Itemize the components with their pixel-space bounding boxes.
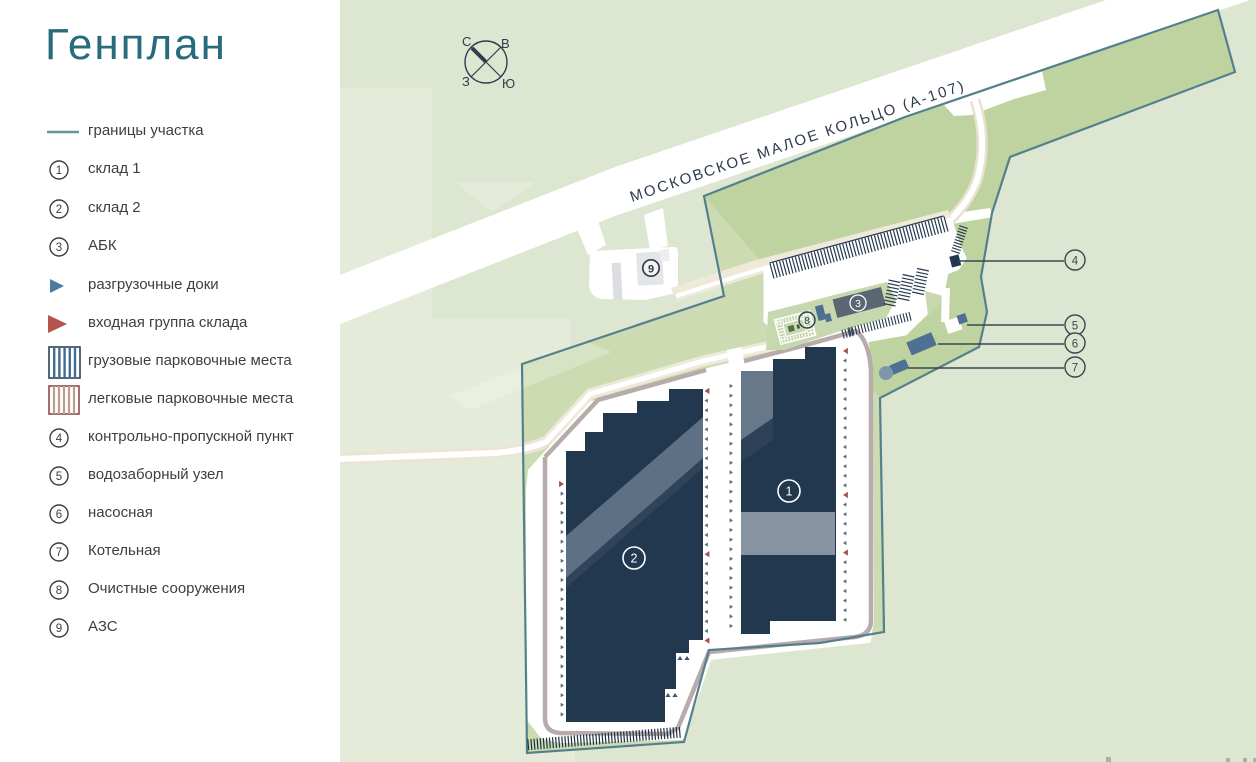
svg-text:5: 5 xyxy=(56,471,62,483)
svg-text:9: 9 xyxy=(56,623,62,635)
svg-text:1: 1 xyxy=(786,485,793,499)
svg-text:2: 2 xyxy=(631,552,638,566)
svg-text:6: 6 xyxy=(56,509,62,521)
svg-text:В: В xyxy=(501,36,510,51)
svg-text:7: 7 xyxy=(1072,363,1078,375)
svg-text:6: 6 xyxy=(1072,339,1078,351)
svg-text:3: 3 xyxy=(855,298,861,310)
svg-text:9: 9 xyxy=(648,264,654,276)
svg-text:5: 5 xyxy=(1072,321,1078,333)
svg-text:4: 4 xyxy=(1072,256,1079,268)
svg-text:С: С xyxy=(462,34,471,49)
svg-text:3: 3 xyxy=(56,242,62,254)
svg-text:8: 8 xyxy=(56,585,62,597)
svg-text:8: 8 xyxy=(804,315,810,327)
svg-text:4: 4 xyxy=(56,433,63,445)
svg-text:2: 2 xyxy=(56,204,62,216)
svg-text:З: З xyxy=(462,74,470,89)
svg-text:Ю: Ю xyxy=(502,76,515,91)
svg-text:1: 1 xyxy=(56,165,62,177)
svg-text:7: 7 xyxy=(56,547,62,559)
